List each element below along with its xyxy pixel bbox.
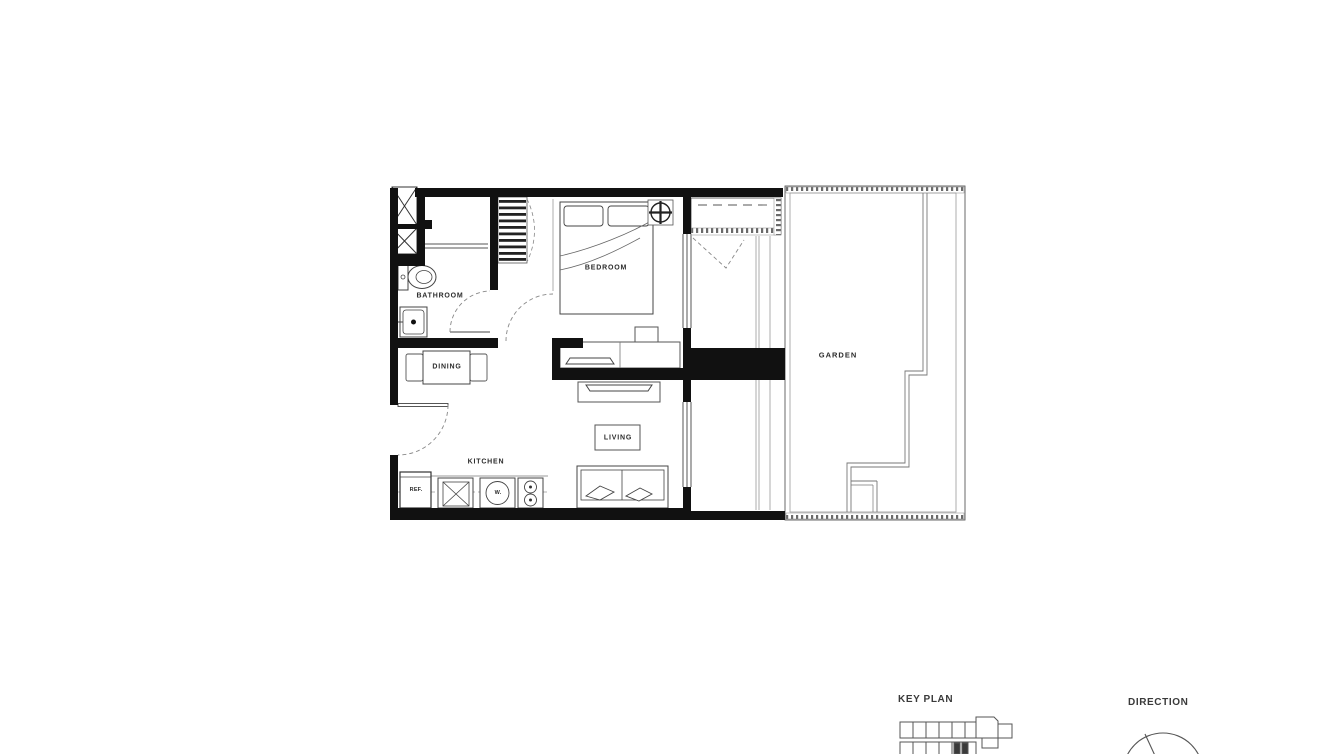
floorplan-page: BATHROOM BEDROOM DINING KITCHEN LIVING G…	[0, 0, 1342, 754]
living-label: LIVING	[604, 435, 632, 442]
wardrobe	[498, 197, 535, 263]
shower-fixtures	[423, 220, 488, 248]
washer-label: W.	[495, 490, 502, 496]
kitchen-label: KITCHEN	[468, 459, 505, 466]
garden-area	[785, 186, 965, 520]
direction-title: DIRECTION	[1128, 697, 1188, 708]
bathroom-fixtures	[398, 264, 436, 337]
bathroom-label: BATHROOM	[416, 293, 463, 300]
dining-label: DINING	[432, 364, 461, 371]
floorplan-drawing	[390, 178, 970, 523]
garden-label: GARDEN	[819, 351, 858, 360]
living-furniture	[577, 382, 668, 508]
bedroom-label: BEDROOM	[585, 265, 627, 272]
key-plan-diagram	[898, 714, 1016, 754]
direction-compass	[1118, 712, 1208, 754]
refrigerator-label: REF.	[410, 487, 423, 493]
terrace-ledge	[691, 198, 781, 268]
key-plan-title: KEY PLAN	[898, 694, 953, 705]
